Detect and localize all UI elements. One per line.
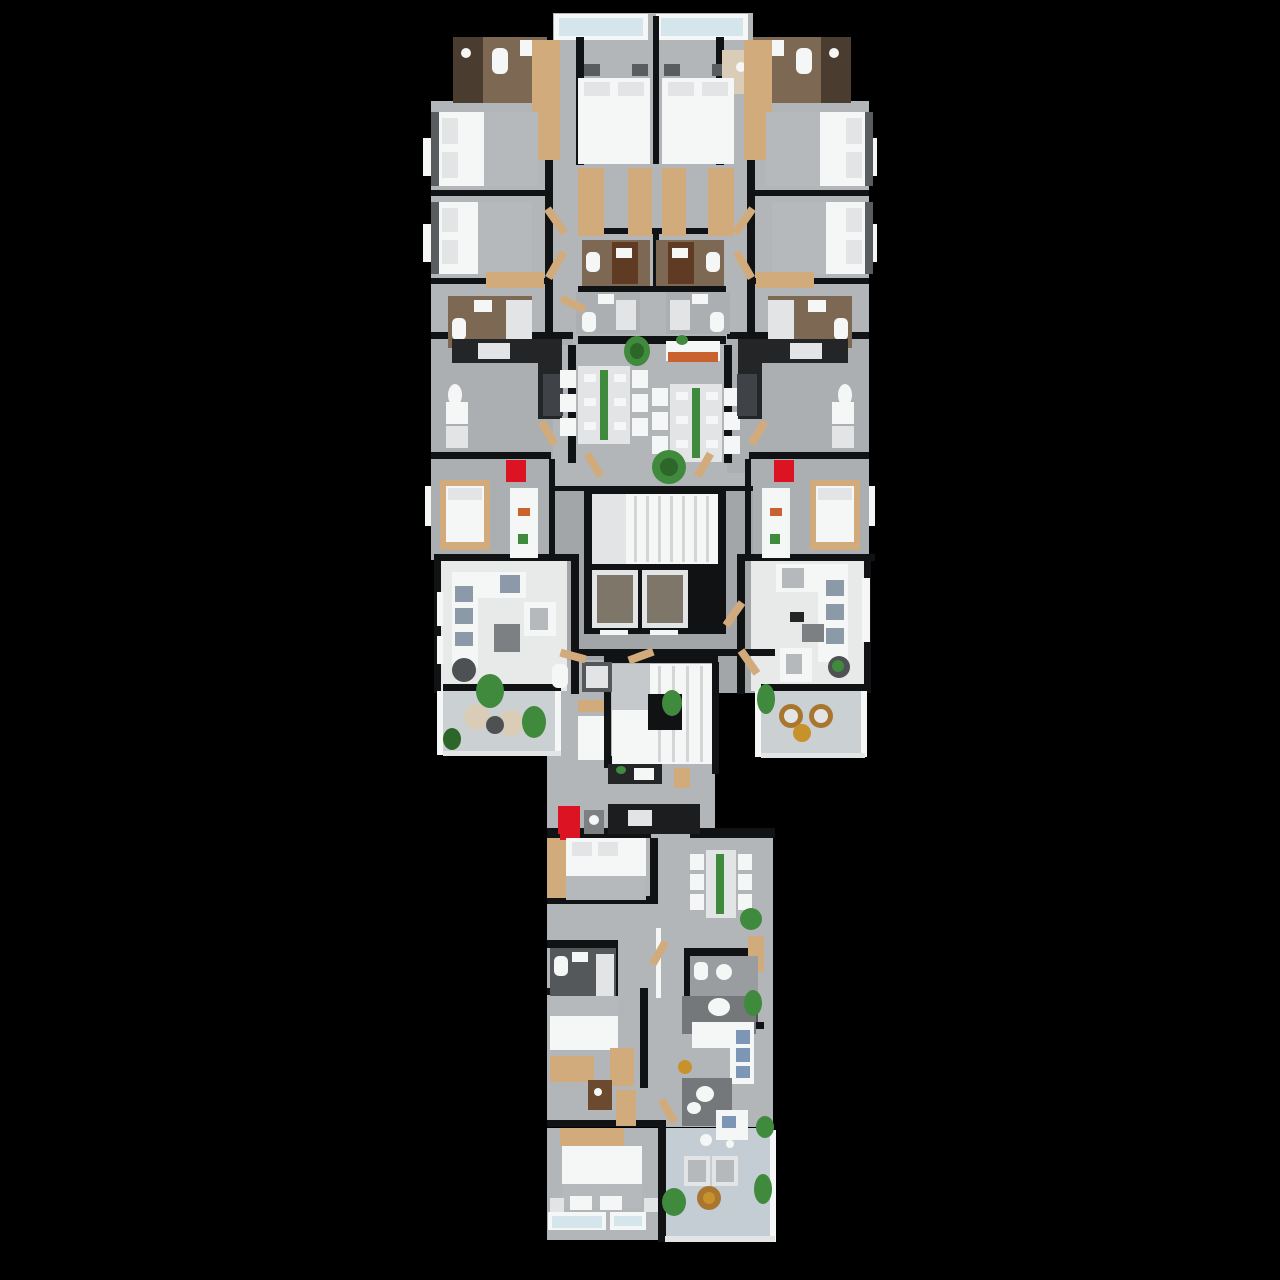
- bed-pillow: [846, 240, 862, 264]
- bed-pillow: [818, 488, 852, 500]
- sink: [672, 248, 688, 258]
- sofa-pillow: [455, 586, 473, 602]
- bed-headboard: [865, 112, 873, 186]
- chair: [690, 874, 704, 890]
- plant-core: [630, 343, 644, 359]
- plate: [614, 398, 626, 406]
- table-runner: [716, 854, 724, 914]
- balcony-rail: [437, 691, 443, 755]
- stove: [790, 343, 822, 359]
- bathtub: [596, 954, 614, 1002]
- bed-headboard: [431, 202, 439, 274]
- window-glass: [661, 18, 743, 36]
- shelf: [578, 700, 604, 712]
- shelving: [737, 374, 757, 416]
- chair: [690, 854, 704, 870]
- stove: [628, 810, 652, 826]
- patio-chair-cushion: [784, 709, 798, 723]
- nightstand: [550, 1198, 564, 1212]
- bed-pillow: [846, 152, 862, 178]
- patio-table: [793, 724, 811, 742]
- window-sill: [862, 578, 870, 642]
- toilet: [492, 48, 508, 74]
- pouf: [687, 1102, 701, 1114]
- plant: [522, 706, 546, 738]
- appliance: [446, 426, 468, 448]
- shower-tray: [616, 300, 636, 330]
- wall: [753, 190, 869, 196]
- wall: [658, 1120, 666, 1242]
- bathtub: [506, 300, 532, 344]
- sofa-pillow: [736, 1048, 750, 1062]
- bed-headboard: [865, 202, 873, 274]
- balcony-rail: [665, 1236, 775, 1242]
- chair: [560, 418, 576, 436]
- patio-chair-cushion: [814, 709, 828, 723]
- wardrobe: [662, 168, 686, 236]
- toilet: [552, 664, 568, 688]
- bed-sheet: [562, 1146, 642, 1184]
- throw-blanket: [530, 608, 548, 630]
- toilet: [586, 252, 600, 272]
- toilet: [706, 252, 720, 272]
- wall: [650, 838, 658, 904]
- sideboard-front: [668, 352, 718, 362]
- sofa-pillow: [500, 575, 520, 593]
- tv: [790, 612, 804, 622]
- wardrobe: [628, 168, 652, 236]
- chair: [560, 370, 576, 388]
- sofa-pillow: [722, 1116, 736, 1128]
- stair-tread: [694, 496, 697, 562]
- wall: [690, 828, 775, 838]
- red-chair: [506, 460, 526, 482]
- toilet: [710, 312, 724, 332]
- wall: [571, 554, 579, 694]
- showerhead: [829, 48, 839, 58]
- stair-tread: [670, 496, 673, 562]
- sofa-pillow: [455, 632, 473, 646]
- showerhead: [461, 48, 471, 58]
- plant-core: [660, 458, 678, 476]
- chair: [560, 394, 576, 412]
- balcony-rail: [761, 753, 865, 758]
- chair: [632, 418, 648, 436]
- stove: [478, 343, 510, 359]
- wardrobe: [616, 1090, 636, 1126]
- plant: [676, 335, 688, 345]
- appliance: [446, 402, 468, 424]
- wall: [653, 16, 659, 164]
- cabinet: [578, 716, 604, 760]
- coffee-table: [494, 624, 520, 652]
- desk: [610, 1048, 634, 1086]
- wall: [604, 656, 718, 663]
- plant: [662, 1188, 686, 1216]
- elevator-door: [597, 575, 633, 623]
- plant: [443, 728, 461, 750]
- red-chair: [774, 460, 794, 482]
- bed-blanket: [566, 876, 646, 900]
- stair-landing: [592, 494, 626, 564]
- balcony-rail: [443, 751, 561, 756]
- toilet: [554, 956, 568, 976]
- stair-tread: [706, 496, 709, 562]
- bed-pillow: [618, 82, 644, 96]
- headboard-dresser: [560, 1128, 624, 1146]
- plate: [614, 422, 626, 430]
- toilet: [452, 318, 466, 340]
- chair: [738, 874, 752, 890]
- stair-tread: [700, 666, 703, 762]
- plant: [476, 674, 504, 708]
- bathtub: [768, 300, 794, 344]
- plant: [744, 990, 762, 1016]
- bed-pillow: [668, 82, 694, 96]
- bed-pillow: [846, 118, 862, 144]
- bed-pillow: [846, 208, 862, 232]
- stair-tread: [646, 496, 649, 562]
- stair-upper: [612, 664, 650, 710]
- elevator-door: [647, 575, 683, 623]
- bed-blanket: [484, 112, 538, 186]
- plate: [706, 416, 718, 424]
- balcony-rail: [555, 691, 561, 755]
- bed-blanket: [766, 112, 820, 186]
- elevator-sill: [650, 630, 678, 635]
- chair: [738, 854, 752, 870]
- wall: [745, 459, 751, 560]
- shower-stall: [821, 37, 851, 103]
- balcony-rail: [861, 691, 867, 757]
- window-sill: [869, 486, 875, 526]
- bed-pillow: [442, 240, 458, 264]
- bed-pillow: [600, 1196, 622, 1210]
- kitchen-counter: [608, 804, 700, 834]
- wall: [761, 684, 865, 691]
- nightstand: [584, 64, 600, 76]
- decor: [518, 508, 530, 516]
- plate: [614, 374, 626, 382]
- plant: [616, 766, 626, 774]
- decor: [770, 508, 782, 516]
- bed-headboard: [431, 112, 439, 186]
- chair: [632, 370, 648, 388]
- chair: [632, 394, 648, 412]
- nightstand: [644, 1198, 658, 1212]
- wall: [737, 554, 745, 694]
- wall: [547, 1120, 665, 1127]
- sofa-pillow: [736, 1030, 750, 1044]
- toilet: [834, 318, 848, 340]
- plate: [676, 440, 688, 448]
- lounge-cushion: [716, 1160, 734, 1182]
- decor: [518, 534, 528, 544]
- shower-stall: [453, 37, 483, 103]
- plate: [584, 398, 596, 406]
- chair: [690, 894, 704, 910]
- sink: [598, 294, 614, 304]
- window-glass: [552, 1216, 602, 1228]
- sink: [808, 300, 826, 312]
- chair: [724, 436, 740, 454]
- wardrobe: [708, 168, 734, 236]
- plant: [662, 690, 682, 716]
- washer-door: [589, 815, 599, 825]
- window-sill: [425, 486, 431, 526]
- ceiling-light: [726, 1140, 734, 1148]
- bed-pillow: [442, 208, 458, 232]
- bed-pillow: [442, 152, 458, 178]
- patio-table: [486, 716, 504, 734]
- window-glass: [614, 1216, 642, 1226]
- sink: [692, 294, 708, 304]
- throw-blanket: [782, 568, 804, 588]
- stair-tread: [682, 496, 685, 562]
- plant: [832, 660, 844, 672]
- floor-plan-canvas: [0, 0, 1280, 1280]
- bed-blanket: [550, 996, 618, 1016]
- wall: [434, 561, 441, 693]
- side-table: [678, 1060, 692, 1074]
- sink: [716, 964, 732, 980]
- pouf: [708, 998, 730, 1016]
- sofa-pillow: [826, 580, 844, 596]
- plant: [756, 1116, 774, 1138]
- throw-blanket: [786, 654, 802, 674]
- appliance: [832, 426, 854, 448]
- appliance: [832, 402, 854, 424]
- bed-pillow: [442, 118, 458, 144]
- sink: [572, 952, 588, 962]
- media-unit: [802, 624, 824, 642]
- bed-pillow: [448, 488, 482, 500]
- window-sill: [423, 138, 431, 176]
- table-runner: [600, 370, 608, 440]
- sofa-pillow: [826, 604, 844, 620]
- sink: [634, 768, 654, 780]
- pouf: [696, 1086, 714, 1102]
- plate: [676, 416, 688, 424]
- window-glass: [559, 18, 643, 36]
- wall: [749, 452, 869, 459]
- patio-table-top: [703, 1192, 715, 1204]
- stair-tread: [686, 666, 689, 762]
- wall: [431, 190, 547, 196]
- wall: [549, 459, 555, 560]
- shower-tray: [586, 666, 608, 688]
- cabinet: [762, 488, 790, 558]
- shower-tray: [670, 300, 690, 330]
- toilet: [582, 312, 596, 332]
- wall: [431, 452, 551, 459]
- window-sill: [437, 592, 443, 626]
- nightstand: [632, 64, 648, 76]
- sofa-pillow: [826, 628, 844, 644]
- plant: [757, 684, 775, 714]
- plate: [584, 374, 596, 382]
- window-sill: [423, 224, 431, 262]
- cabinet: [674, 768, 690, 788]
- sofa-pillow: [736, 1066, 750, 1078]
- toilet: [694, 962, 708, 980]
- desk: [486, 272, 544, 288]
- bed-pillow: [598, 842, 618, 856]
- cabinet: [510, 488, 538, 558]
- plate: [706, 392, 718, 400]
- stair-tread: [634, 496, 637, 562]
- plate: [706, 440, 718, 448]
- wall: [434, 554, 574, 561]
- toilet: [796, 48, 812, 74]
- desk: [550, 1056, 594, 1082]
- wall: [640, 988, 648, 1088]
- ceiling-light: [700, 1134, 712, 1146]
- window-sill: [437, 636, 443, 664]
- chair: [652, 388, 668, 406]
- bed-pillow: [572, 842, 592, 856]
- table-runner: [692, 388, 700, 458]
- plant: [754, 1174, 772, 1204]
- wall: [547, 940, 617, 948]
- lounge-cushion: [688, 1160, 706, 1182]
- wardrobe: [578, 168, 604, 236]
- side-table: [452, 658, 476, 682]
- sofa-pillow: [455, 608, 473, 624]
- bed-pillow: [702, 82, 728, 96]
- decor: [770, 534, 780, 544]
- desk: [756, 272, 814, 288]
- plate: [676, 392, 688, 400]
- sink: [474, 300, 492, 312]
- chair: [652, 412, 668, 430]
- sink: [616, 248, 632, 258]
- nightstand: [664, 64, 680, 76]
- bed-blanket: [478, 202, 532, 274]
- bed-pillow: [584, 82, 610, 96]
- plate: [584, 422, 596, 430]
- bed-pillow: [570, 1196, 592, 1210]
- pendant-light: [594, 1088, 602, 1096]
- bed-blanket: [772, 202, 826, 274]
- elevator-sill: [600, 630, 628, 635]
- plant: [740, 908, 762, 930]
- sofa: [692, 1022, 734, 1048]
- stair-tread: [658, 496, 661, 562]
